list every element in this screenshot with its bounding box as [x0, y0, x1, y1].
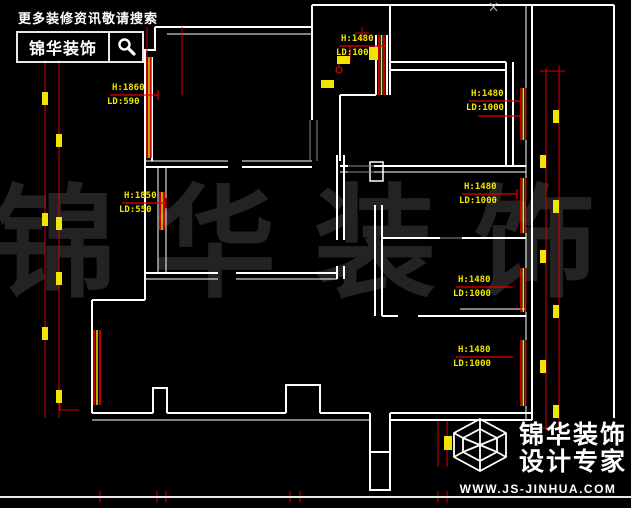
footer-website-url: WWW.JS-JINHUA.COM	[449, 482, 627, 496]
promo-tagline: 更多装修资讯敬请搜索	[18, 8, 158, 27]
footer-brand-subtitle: 设计专家	[519, 448, 627, 475]
door-lines-group	[310, 120, 462, 238]
window-spec-label: H:1480 LD:1000	[341, 33, 374, 59]
footer-brand-name: 锦华装饰	[519, 421, 627, 448]
window-spec-label: H:1860 LD:590	[112, 82, 145, 108]
magnifier-icon	[108, 33, 142, 61]
cube-wireframe-icon	[449, 416, 511, 479]
window-spec-label: H:1480 LD:1000	[471, 88, 504, 114]
footer-brand-logo: 锦华装饰 设计专家 WWW.JS-JINHUA.COM	[449, 416, 627, 496]
search-promo-logo: 更多装修资讯敬请搜索 锦华装饰	[16, 8, 158, 63]
window-spec-label: H:1480 LD:1000	[458, 274, 491, 300]
floor-plan-screenshot: 锦华装饰	[0, 0, 631, 508]
brand-search-box: 锦华装饰	[16, 31, 144, 63]
window-spec-label: H:1850 LD:550	[124, 190, 157, 216]
brand-name: 锦华装饰	[18, 33, 108, 61]
window-spec-label: H:1480 LD:1000	[458, 344, 491, 370]
window-spec-label: H:1480 LD:1000	[464, 181, 497, 207]
